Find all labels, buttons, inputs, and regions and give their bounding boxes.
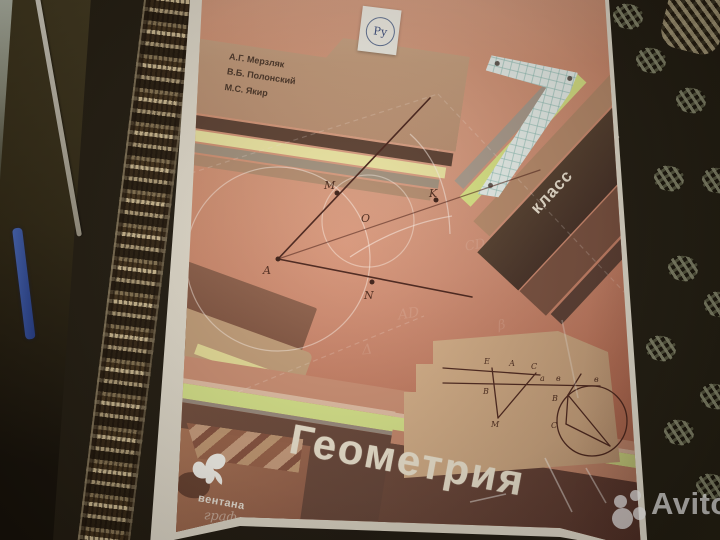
fig-label: А	[508, 359, 515, 368]
transversal-labels: Е А С В М а в	[482, 357, 599, 429]
carpet-motif	[611, 1, 646, 32]
carpet-motif	[652, 163, 687, 194]
fig-label: а	[540, 374, 545, 383]
carpet-motif	[698, 381, 720, 412]
avito-dot-icon	[630, 490, 641, 501]
fig-label: В	[551, 394, 558, 403]
avito-dot-icon	[633, 507, 646, 520]
fig-label: в	[556, 374, 561, 383]
carpet-olive-band	[0, 0, 92, 540]
carpet-motif	[634, 45, 669, 76]
fig-label: М	[490, 420, 500, 429]
avito-watermark-text: Avito	[651, 486, 720, 522]
faint-dashed-lines	[182, 94, 626, 392]
carpet-motif	[702, 289, 720, 320]
avito-dot-icon	[614, 495, 627, 508]
carpet-motif	[674, 85, 709, 116]
fig-label: С	[551, 421, 557, 430]
point-label-o: O	[361, 212, 370, 225]
carpet-motif	[700, 165, 720, 196]
point-label-n: N	[363, 289, 374, 302]
carpet-motif	[662, 417, 697, 448]
point-label-a: A	[262, 264, 271, 277]
avito-dot-icon	[612, 508, 633, 529]
point-label-m: M	[323, 179, 336, 192]
fig-label: Е	[483, 357, 490, 366]
fig-label: С	[531, 362, 537, 371]
fig-label: В	[482, 387, 489, 396]
fig-label: в	[594, 375, 599, 384]
circle-figure	[557, 374, 627, 456]
construction-figure: M O K A N	[186, 98, 540, 351]
carpet-motif	[644, 333, 679, 364]
circle-labels: в В С	[551, 374, 561, 430]
carpet-motif	[666, 253, 701, 284]
avito-watermark: Avito	[601, 482, 719, 534]
point-label-k: K	[428, 187, 438, 200]
carpet-corner-pattern	[657, 0, 720, 58]
photo-scene: AB CD AD α β Δ А.Г. Мерзляк В.Б. Полонск…	[0, 0, 720, 540]
